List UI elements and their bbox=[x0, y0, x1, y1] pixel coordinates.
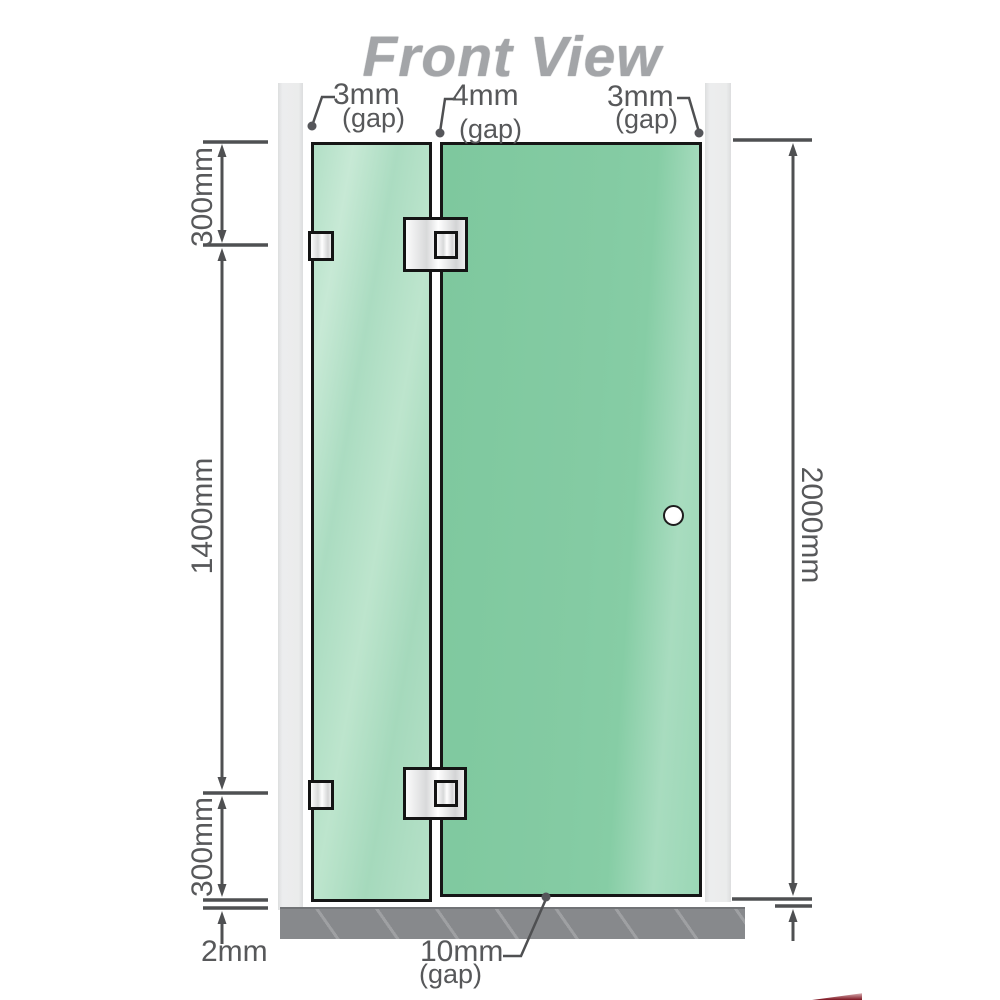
dim-label-left-bottom: 300mm bbox=[188, 777, 220, 917]
dim-label-floor-gap: 2mm bbox=[201, 937, 268, 967]
front-view-diagram: Front View bbox=[0, 0, 1000, 1000]
gap-label-bottom-suffix: (gap) bbox=[419, 961, 482, 988]
gap-label-top-left-suffix: (gap) bbox=[342, 105, 405, 132]
gap-label-top-mid-value: 4mm bbox=[452, 81, 519, 111]
gap-label-top-mid-suffix: (gap) bbox=[459, 116, 522, 143]
dim-label-left-middle: 1400mm bbox=[188, 446, 220, 586]
dimension-ticks bbox=[203, 140, 812, 908]
dimension-lines bbox=[222, 152, 793, 944]
gap-label-top-right-suffix: (gap) bbox=[615, 106, 678, 133]
dimension-arrowheads bbox=[218, 143, 798, 924]
dimension-graphics bbox=[0, 0, 1000, 1000]
leader-lines bbox=[312, 97, 699, 956]
dim-label-left-top: 300mm bbox=[188, 127, 220, 267]
leader-dots bbox=[308, 122, 704, 902]
dim-label-right-height: 2000mm bbox=[794, 455, 826, 595]
